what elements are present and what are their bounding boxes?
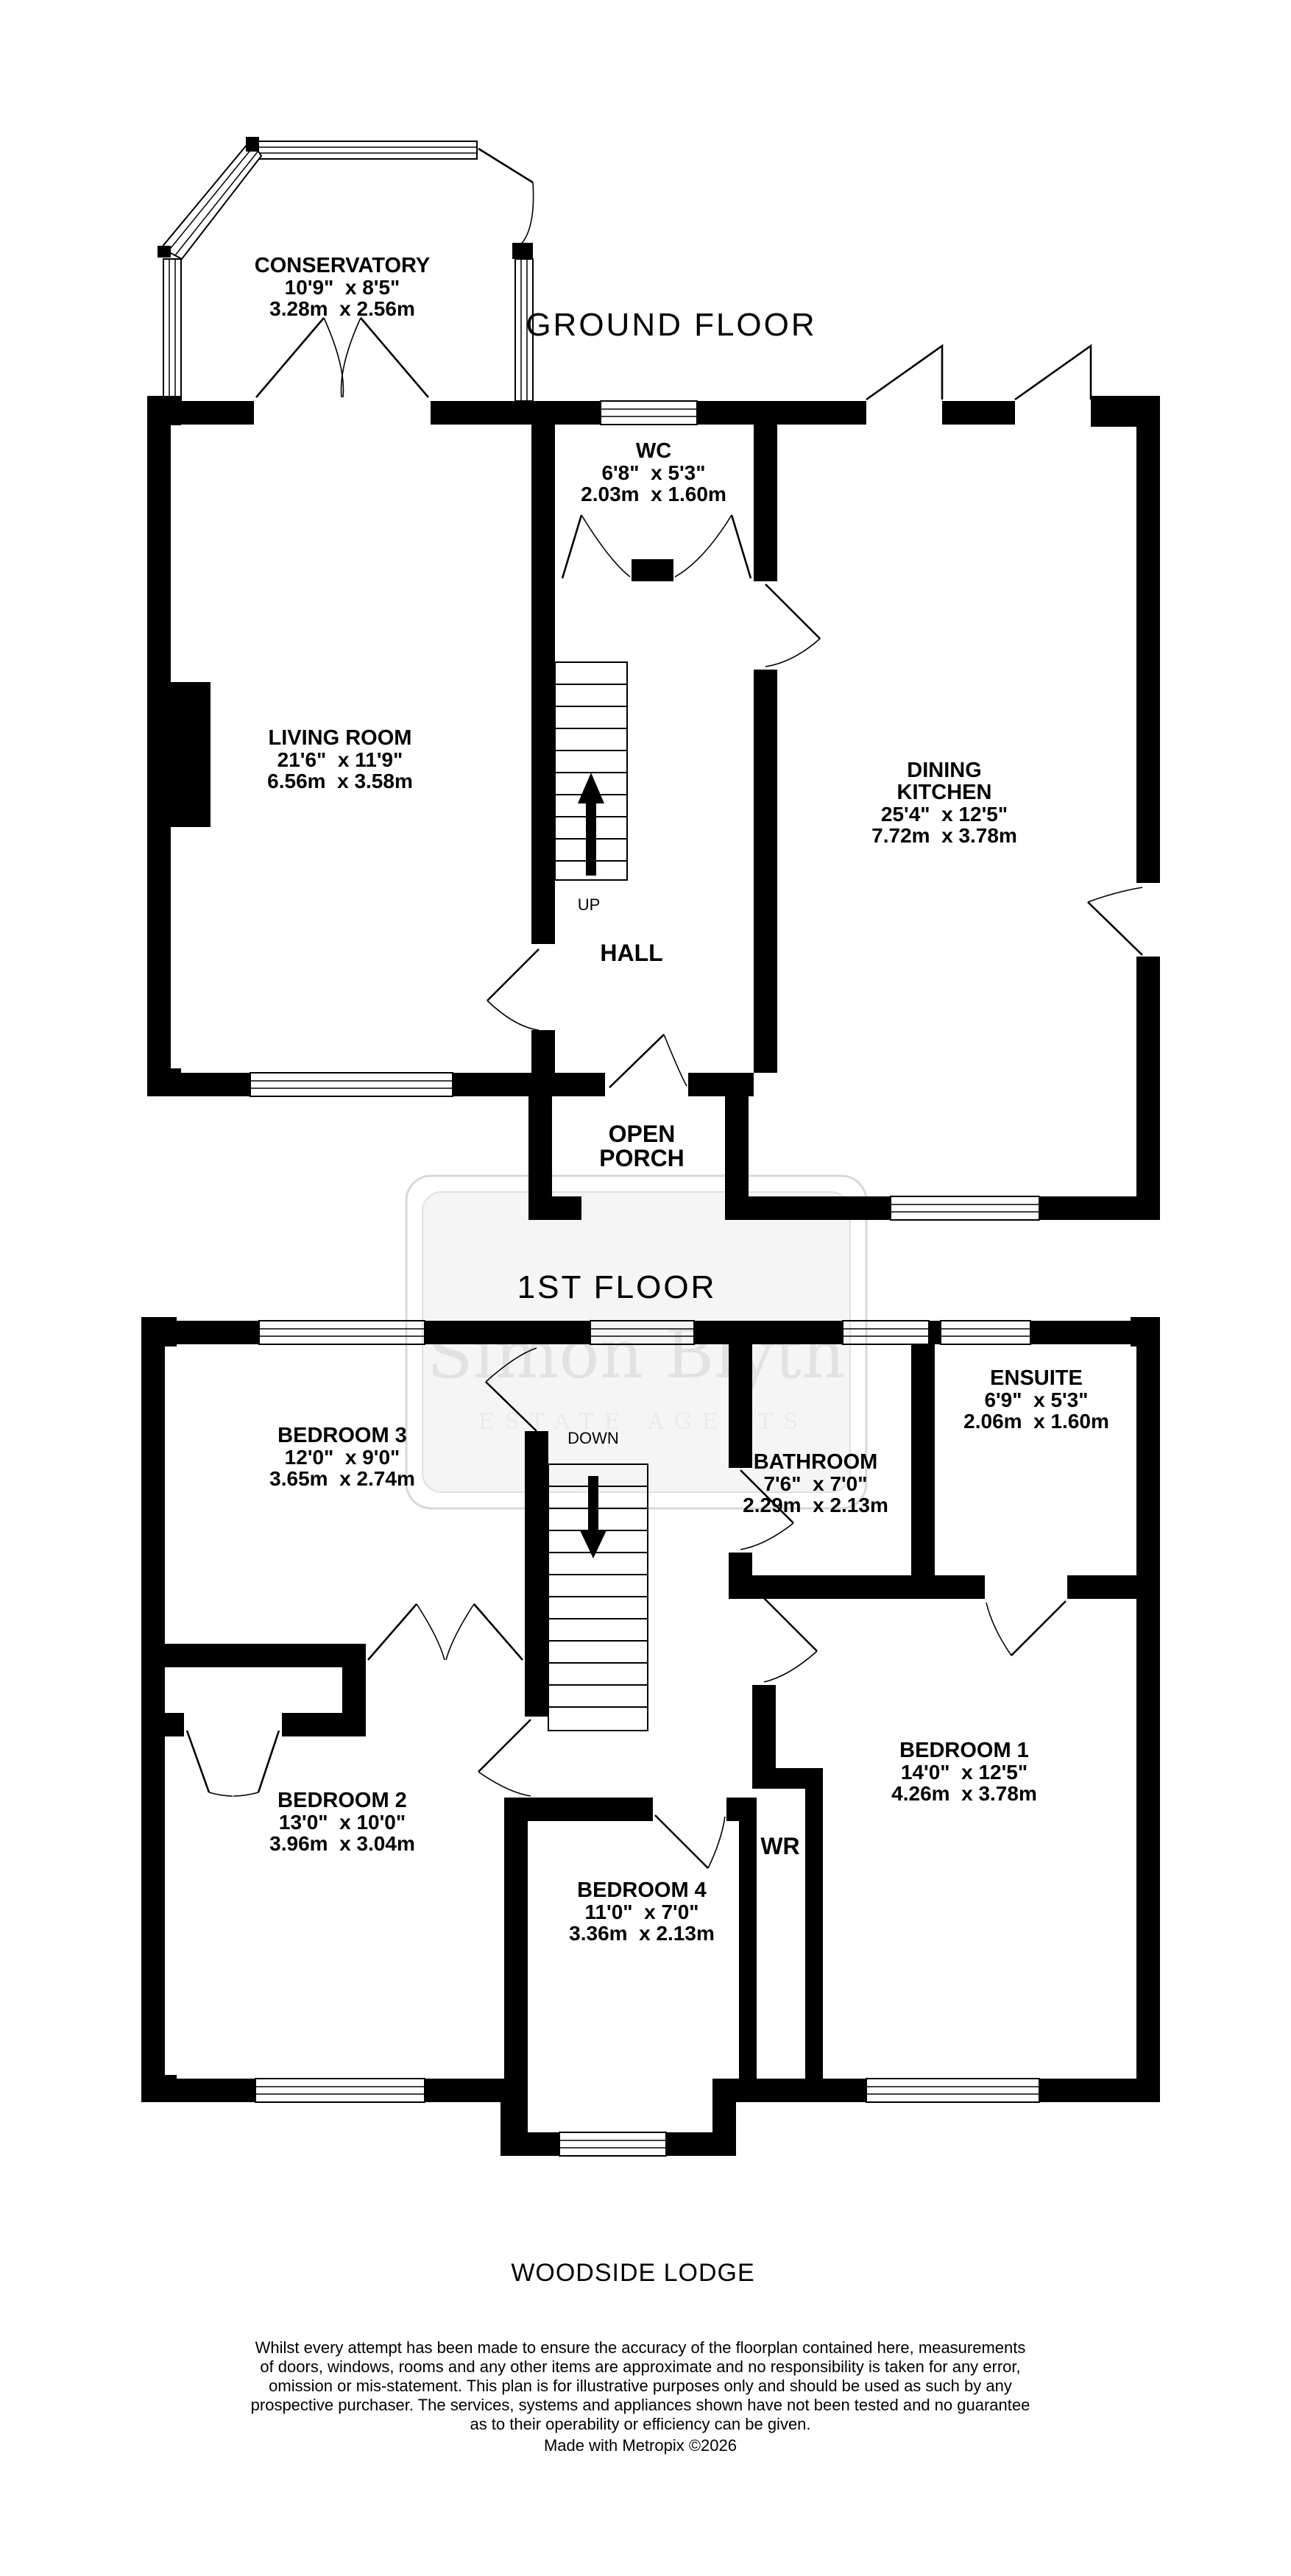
- dining-kitchen-dims-imperial: 25'4" x 12'5": [881, 803, 1008, 826]
- bedroom3-dims-imperial: 12'0" x 9'0": [285, 1446, 400, 1469]
- living-room-label: LIVING ROOM: [269, 726, 412, 750]
- ground-floor-title: GROUND FLOOR: [526, 307, 816, 343]
- stairs-down: [548, 1464, 648, 1731]
- wr-label: WR: [760, 1833, 799, 1859]
- conservatory-dims-metric: 3.28m x 2.56m: [269, 297, 415, 320]
- ensuite-label: ENSUITE: [990, 1366, 1083, 1390]
- bathroom-dims-metric: 2.29m x 2.13m: [743, 1494, 888, 1516]
- bedroom1-dims-metric: 4.26m x 3.78m: [891, 1782, 1037, 1805]
- bedroom4-label: BEDROOM 4: [577, 1878, 707, 1902]
- dining-kitchen-dims-metric: 7.72m x 3.78m: [871, 824, 1017, 847]
- bedroom4-dims-metric: 3.36m x 2.13m: [569, 1922, 715, 1945]
- watermark-tagline: ESTATE AGENTS: [478, 1409, 809, 1435]
- open-porch-label-1: OPEN: [609, 1121, 676, 1147]
- disclaimer-line-2: of doors, windows, rooms and any other i…: [260, 2357, 1020, 2376]
- disclaimer-line-1: Whilst every attempt has been made to en…: [255, 2338, 1026, 2357]
- bedroom2-dims-imperial: 13'0" x 10'0": [279, 1811, 406, 1834]
- first-floor-title-overlay: 1ST FLOOR: [517, 1269, 717, 1305]
- disclaimer-line-5: as to their operability or efficiency ca…: [470, 2415, 810, 2433]
- disclaimer-line-3: omission or mis-statement. This plan is …: [269, 2377, 1012, 2395]
- ground-floor-doors: [256, 318, 1142, 1087]
- living-room-dims-imperial: 21'6" x 11'9": [277, 748, 403, 771]
- bedroom1-label: BEDROOM 1: [899, 1739, 1029, 1762]
- hall-label: HALL: [600, 940, 662, 966]
- open-porch-label-2: PORCH: [599, 1145, 685, 1171]
- conservatory-label: CONSERVATORY: [255, 254, 431, 277]
- stairs-up: [555, 662, 627, 880]
- watermark-brand: Simon Blyth: [427, 1315, 846, 1394]
- metropix-credit: Made with Metropix ©2026: [544, 2436, 737, 2455]
- living-room-dims-metric: 6.56m x 3.58m: [267, 770, 413, 792]
- bedroom1-dims-imperial: 14'0" x 12'5": [901, 1761, 1028, 1784]
- wc-label: WC: [636, 439, 671, 463]
- floorplan-svg: GROUND FLOOR CONSERVATORY 10'9" x 8'5" 3…: [0, 0, 1291, 2576]
- footer: WOODSIDE LODGE Whilst every attempt has …: [251, 2259, 1030, 2455]
- ensuite-dims-metric: 2.06m x 1.60m: [963, 1410, 1109, 1433]
- ground-floor-plan: GROUND FLOOR CONSERVATORY 10'9" x 8'5" 3…: [147, 137, 1160, 1220]
- bedroom3-dims-metric: 3.65m x 2.74m: [269, 1467, 415, 1490]
- ensuite-dims-imperial: 6'9" x 5'3": [984, 1388, 1088, 1411]
- bedroom2-dims-metric: 3.96m x 3.04m: [269, 1832, 415, 1855]
- stairs-up-label: UP: [578, 895, 601, 914]
- floorplan-page: GROUND FLOOR CONSERVATORY 10'9" x 8'5" 3…: [0, 0, 1291, 2576]
- watermark: Simon Blyth ESTATE AGENTS: [406, 1176, 866, 1508]
- conservatory-corner-door: [478, 149, 533, 182]
- dining-kitchen-label-1: DINING: [907, 759, 982, 782]
- bedroom3-label: BEDROOM 3: [277, 1424, 407, 1447]
- property-title: WOODSIDE LODGE: [511, 2259, 754, 2287]
- bedroom4-dims-imperial: 11'0" x 7'0": [584, 1901, 698, 1923]
- dining-kitchen-label-2: KITCHEN: [897, 781, 992, 804]
- wc-dims-metric: 2.03m x 1.60m: [581, 483, 726, 505]
- disclaimer-line-4: prospective purchaser. The services, sys…: [251, 2396, 1030, 2414]
- conservatory-dims-imperial: 10'9" x 8'5": [285, 276, 400, 299]
- bedroom2-label: BEDROOM 2: [277, 1789, 407, 1812]
- wc-dims-imperial: 6'8" x 5'3": [601, 461, 705, 484]
